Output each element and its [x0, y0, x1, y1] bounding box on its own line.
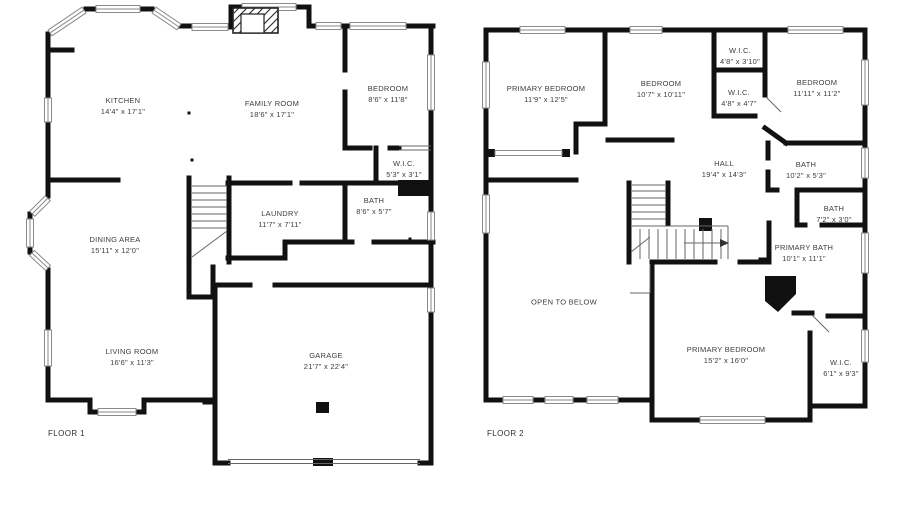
room-label: BEDROOM11'11" x 11'2"	[793, 77, 840, 99]
floorplan-drawing	[0, 0, 900, 529]
room-label: PRIMARY BATH10'1" x 11'1"	[775, 242, 833, 264]
floor1-stairs-icon	[192, 186, 227, 257]
corner-shower-icon	[765, 276, 796, 312]
room-dimensions: 18'6" x 17'1"	[245, 109, 299, 120]
floor1-caption: FLOOR 1	[48, 429, 85, 438]
room-dimensions: 16'6" x 11'3"	[106, 357, 159, 368]
room-name: W.I.C.	[721, 87, 757, 98]
room-dimensions: 15'2" x 16'0"	[687, 355, 766, 366]
garage-column	[316, 402, 329, 413]
room-label: W.I.C.4'8" x 4'7"	[721, 87, 757, 109]
room-dimensions: 14'4" x 17'1"	[101, 106, 145, 117]
room-label: HALL19'4" x 14'3"	[702, 158, 746, 180]
room-dimensions: 10'7" x 10'11"	[637, 89, 685, 100]
room-dimensions: 7'2" x 3'0"	[816, 214, 852, 225]
room-dimensions: 4'8" x 3'10"	[720, 56, 760, 67]
room-dimensions: 11'7" x 7'11"	[258, 219, 301, 230]
room-name: BATH	[786, 159, 826, 170]
room-dimensions: 15'11" x 12'0"	[89, 245, 140, 256]
room-label: PRIMARY BEDROOM11'9" x 12'5"	[507, 83, 586, 105]
room-name: BEDROOM	[368, 83, 409, 94]
room-label: LAUNDRY11'7" x 7'11"	[258, 208, 301, 230]
room-label: W.I.C.4'8" x 3'10"	[720, 45, 760, 67]
room-dimensions: 8'6" x 11'8"	[368, 94, 409, 105]
room-name: BATH	[356, 195, 392, 206]
room-label: KITCHEN14'4" x 17'1"	[101, 95, 145, 117]
room-label: BEDROOM8'6" x 11'8"	[368, 83, 409, 105]
floorplan-canvas: KITCHEN14'4" x 17'1"FAMILY ROOM18'6" x 1…	[0, 0, 900, 529]
room-label: BATH10'2" x 5'3"	[786, 159, 826, 181]
room-label: W.I.C.5'3" x 3'1"	[386, 158, 422, 180]
room-label: PRIMARY BEDROOM15'2" x 16'0"	[687, 344, 766, 366]
room-label: OPEN TO BELOW	[531, 297, 597, 308]
window	[48, 7, 86, 36]
room-dimensions: 21'7" x 22'4"	[304, 361, 348, 372]
room-label: W.I.C.6'1" x 9'3"	[823, 357, 859, 379]
floor2-stairs-icon	[630, 185, 729, 293]
room-name: BEDROOM	[637, 78, 685, 89]
room-dimensions: 11'11" x 11'2"	[793, 88, 840, 99]
room-name: BATH	[816, 203, 852, 214]
room-dimensions: 10'2" x 5'3"	[786, 170, 826, 181]
room-dimensions: 5'3" x 3'1"	[386, 169, 422, 180]
fireplace-icon	[233, 8, 278, 33]
door-leaf	[766, 97, 781, 112]
room-name: KITCHEN	[101, 95, 145, 106]
room-name: W.I.C.	[823, 357, 859, 368]
room-name: FAMILY ROOM	[245, 98, 299, 109]
stair-post	[699, 218, 712, 231]
room-label: LIVING ROOM16'6" x 11'3"	[106, 346, 159, 368]
room-label: DINING AREA15'11" x 12'0"	[89, 234, 140, 256]
room-name: LAUNDRY	[258, 208, 301, 219]
room-dimensions: 19'4" x 14'3"	[702, 169, 746, 180]
room-label: GARAGE21'7" x 22'4"	[304, 350, 348, 372]
room-dimensions: 6'1" x 9'3"	[823, 368, 859, 379]
room-name: HALL	[702, 158, 746, 169]
room-label: BATH7'2" x 3'0"	[816, 203, 852, 225]
floor2-caption: FLOOR 2	[487, 429, 524, 438]
room-dimensions: 11'9" x 12'5"	[507, 94, 586, 105]
room-name: GARAGE	[304, 350, 348, 361]
room-name: LIVING ROOM	[106, 346, 159, 357]
room-name: BEDROOM	[793, 77, 840, 88]
room-dimensions: 4'8" x 4'7"	[721, 98, 757, 109]
room-name: OPEN TO BELOW	[531, 297, 597, 308]
room-label: BATH8'6" x 5'7"	[356, 195, 392, 217]
room-dimensions: 10'1" x 11'1"	[775, 253, 833, 264]
room-name: W.I.C.	[386, 158, 422, 169]
room-label: BEDROOM10'7" x 10'11"	[637, 78, 685, 100]
room-label: FAMILY ROOM18'6" x 17'1"	[245, 98, 299, 120]
room-name: DINING AREA	[89, 234, 140, 245]
room-name: PRIMARY BATH	[775, 242, 833, 253]
room-name: PRIMARY BEDROOM	[687, 344, 766, 355]
room-name: W.I.C.	[720, 45, 760, 56]
room-name: PRIMARY BEDROOM	[507, 83, 586, 94]
closet-door	[495, 151, 562, 156]
chase-block	[398, 180, 433, 196]
room-dimensions: 8'6" x 5'7"	[356, 206, 392, 217]
